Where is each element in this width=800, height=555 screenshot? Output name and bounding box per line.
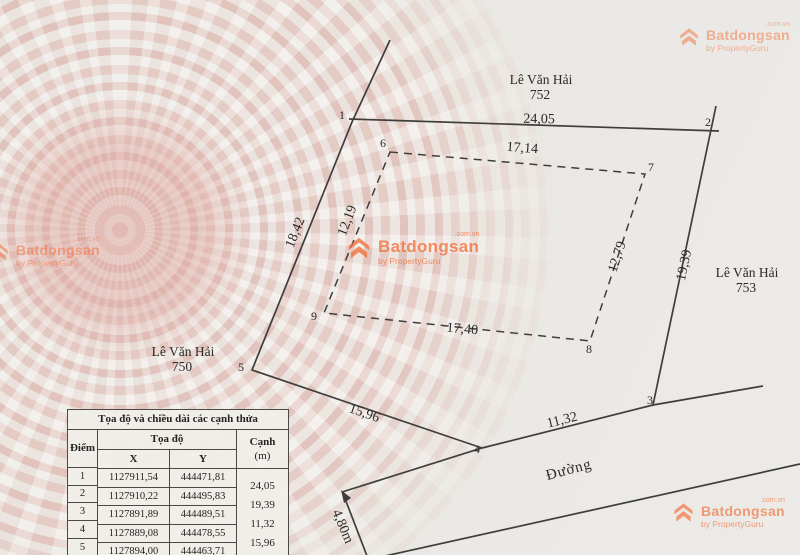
table-row: 1127891,89 444489,51 [98, 506, 236, 525]
edge-label-17-40: 17,40 [446, 321, 479, 339]
table-cell-edge: 24,05 [237, 477, 288, 495]
table-body: Điểm 1 2 3 4 5 Tọa độ X Y 1127911,54 444… [68, 430, 288, 555]
table-header-edge: Cạnh (m) [237, 430, 288, 469]
table-cell-point: 1 [68, 468, 97, 486]
table-header-y: Y [170, 450, 236, 468]
edge-label-11-32: 11,32 [545, 410, 579, 432]
edge-label-24-05: 24,05 [523, 112, 555, 128]
owner-label-753-name: Lê Văn Hải [716, 265, 779, 280]
table-row: 1127889,08 444478,55 [98, 525, 236, 544]
edge-label-19-39: 19,39 [674, 248, 695, 282]
table-header-edge-unit: (m) [255, 450, 271, 462]
point-label-5: 5 [238, 360, 244, 374]
table-column-point: Điểm 1 2 3 4 5 [68, 430, 98, 555]
road-label: Đường [544, 456, 593, 484]
table-cell-edge: 15,96 [237, 534, 288, 552]
point-label-4: 4 [474, 442, 480, 456]
point-label-3: 3 [647, 393, 653, 407]
owner-label-752-number: 752 [530, 87, 550, 102]
point-label-9: 9 [311, 309, 317, 323]
table-cell-x: 1127889,08 [98, 525, 170, 543]
owner-label-752-name: Lê Văn Hải [510, 72, 573, 87]
table-header-x: X [98, 450, 170, 468]
table-cell-x: 1127911,54 [98, 469, 170, 487]
table-cell-point: 3 [68, 503, 97, 521]
point-label-2: 2 [705, 115, 711, 129]
table-cell-y: 444471,81 [170, 469, 236, 487]
edge-label-17-14: 17,14 [506, 140, 539, 157]
coordinate-table: Tọa độ và chiều dài các cạnh thửa Điểm 1… [67, 409, 289, 555]
point-label-1: 1 [339, 108, 345, 122]
point-label-7: 7 [648, 160, 654, 174]
table-header-edge-label: Cạnh [250, 436, 276, 448]
table-row: 1127894,00 444463,71 [98, 543, 236, 555]
dimension-arrowhead [341, 490, 351, 503]
table-cell-point: 5 [68, 539, 97, 555]
owner-label-750-number: 750 [172, 359, 193, 374]
table-row: 1127911,54 444471,81 [98, 469, 236, 488]
table-cell-y: 444478,55 [170, 525, 236, 543]
table-cell-y: 444495,83 [170, 488, 236, 506]
road-edge-lower-line [385, 464, 800, 555]
point-label-8: 8 [586, 342, 592, 356]
edge-label-18-42: 18,42 [283, 215, 309, 250]
point-label-6: 6 [380, 136, 386, 150]
table-cell-edge: 11,32 [237, 515, 288, 533]
cadastral-map-page: 1 2 3 4 5 6 7 8 9 24,05 17,14 18,42 12,1… [0, 0, 800, 555]
owner-label-750-name: Lê Văn Hải [152, 344, 215, 359]
table-cell-x: 1127910,22 [98, 488, 170, 506]
inner-parcel-dashed-outline [324, 152, 645, 341]
table-title: Tọa độ và chiều dài các cạnh thửa [68, 410, 288, 430]
edge-label-15-96: 15,96 [347, 401, 382, 425]
table-cell-point: 2 [68, 486, 97, 504]
table-cell-y: 444489,51 [170, 506, 236, 524]
table-cell-x: 1127894,00 [98, 543, 170, 555]
table-cell-y: 444463,71 [170, 543, 236, 555]
table-column-edge: Cạnh (m) 24,05 19,39 11,32 15,96 [237, 430, 288, 555]
table-cell-edge: 19,39 [237, 496, 288, 514]
table-cell-x: 1127891,89 [98, 506, 170, 524]
table-header-point: Điểm [68, 430, 97, 468]
table-row: 1127910,22 444495,83 [98, 488, 236, 507]
table-cell-point: 4 [68, 521, 97, 539]
table-header-xy: X Y [98, 450, 236, 469]
table-header-coordinates: Tọa độ [98, 430, 236, 450]
road-width-label-4-80m: 4,80m [328, 507, 356, 546]
edge-label-12-79: 12,79 [606, 240, 630, 275]
table-column-coordinates: Tọa độ X Y 1127911,54 444471,81 1127910,… [98, 430, 237, 555]
owner-label-753-number: 753 [736, 280, 757, 295]
